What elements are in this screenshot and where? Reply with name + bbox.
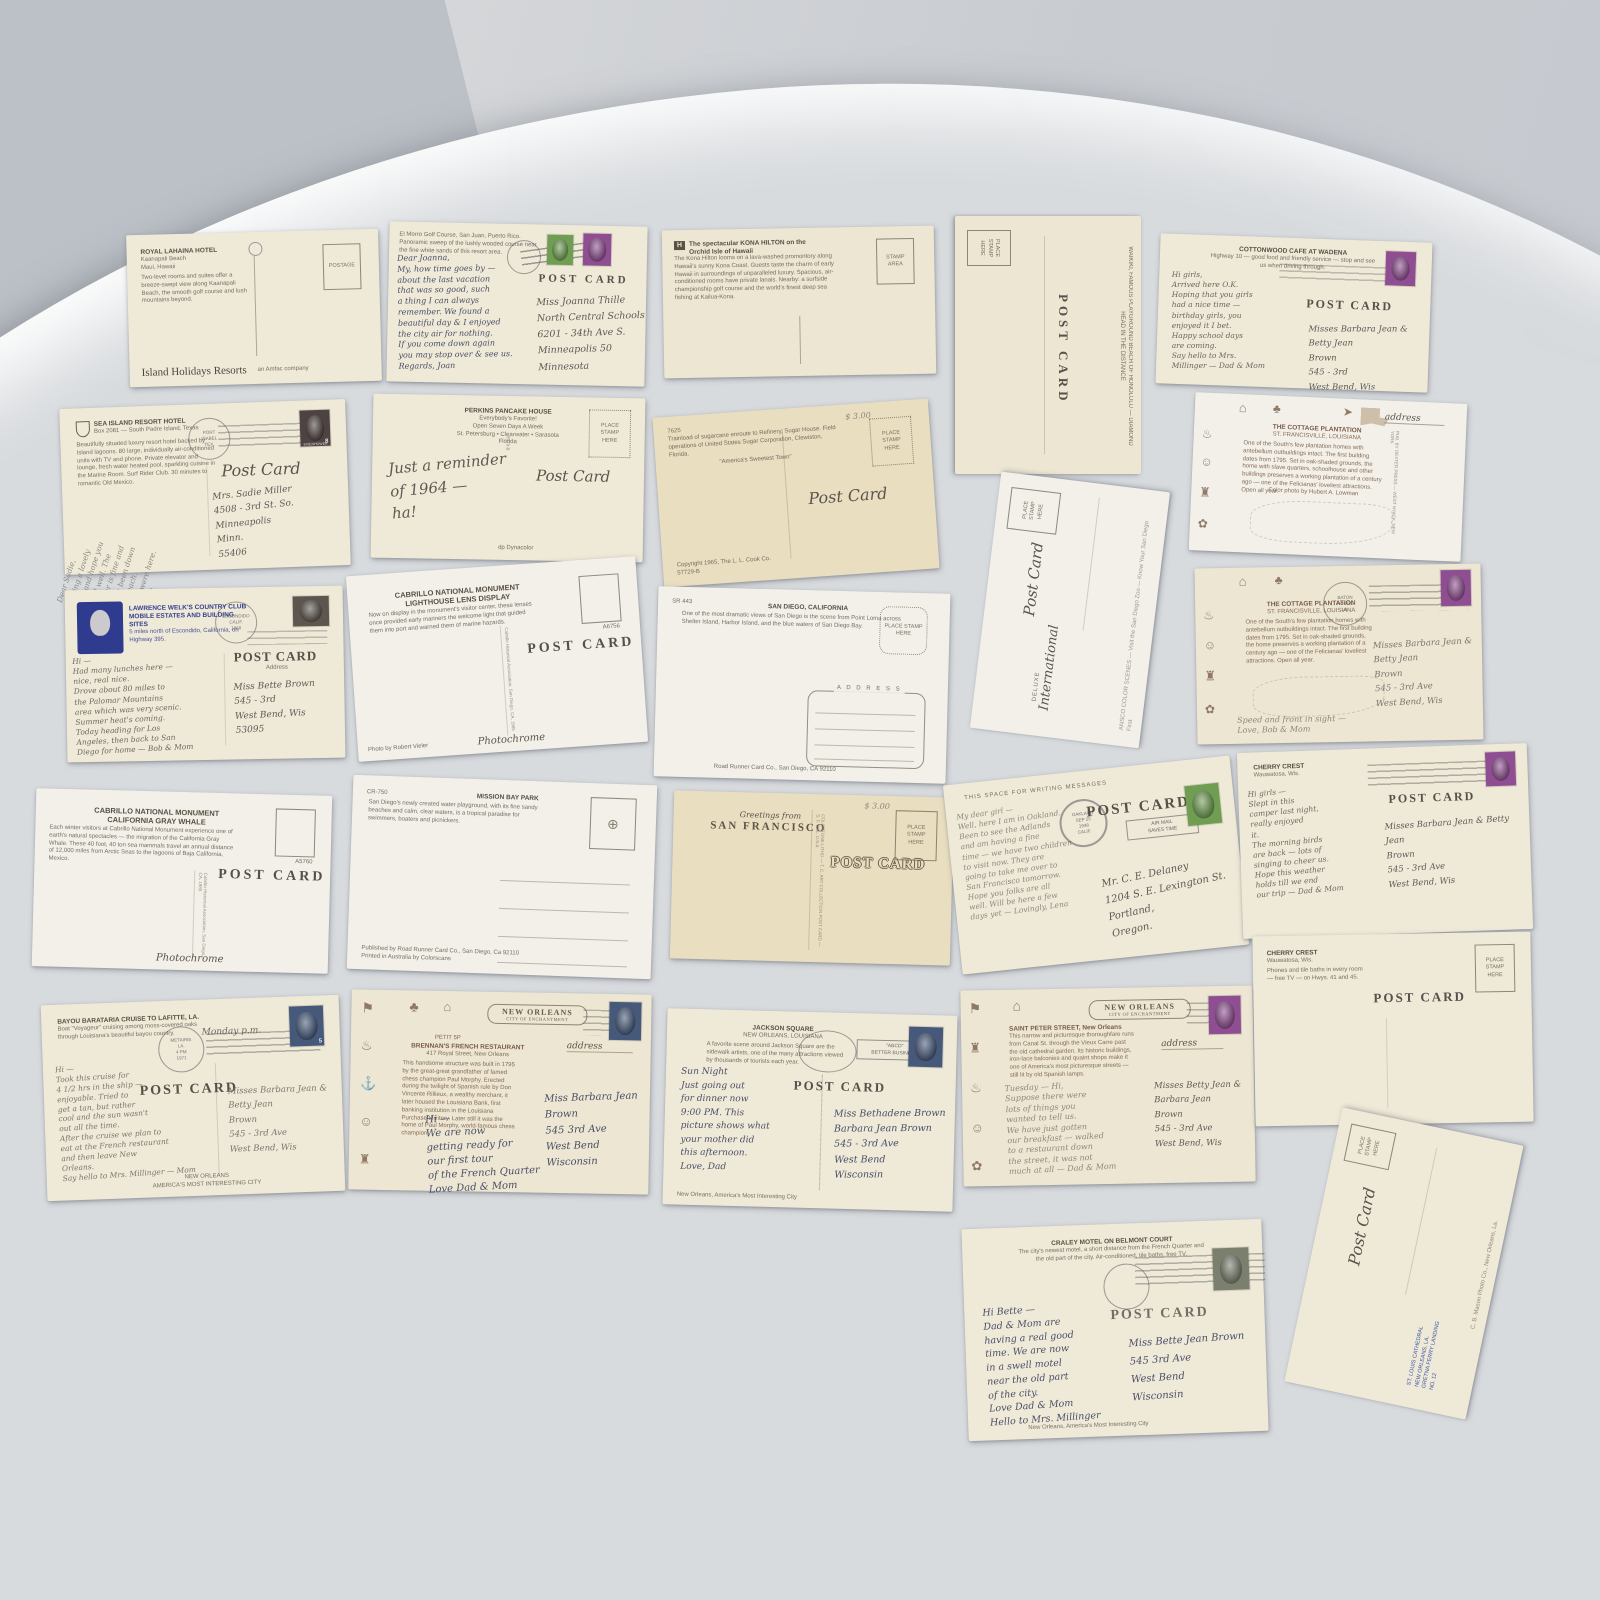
address-line — [500, 880, 630, 886]
new-orleans-cancel-icon: NEW ORLEANSCITY OF ENCHANTMENT — [1089, 999, 1191, 1021]
steamboat-sketch-icon: ♨ — [970, 1080, 982, 1096]
pencil-price-note: $ 3.00 — [864, 801, 890, 811]
printer-logo-text: Photochrome — [477, 732, 545, 748]
balcony-sketch-icon: ♜ — [359, 1152, 371, 1168]
logo-medallion-icon — [248, 242, 262, 256]
postcard-jackson-square: JACKSON SQUARE NEW ORLEANS, LOUISIANA A … — [662, 1008, 957, 1212]
handwritten-address: Miss Bethadene Brown Barbara Jean Brown … — [834, 1106, 951, 1183]
brand-subtext: an Amfac company — [258, 366, 309, 375]
postcard-label: POST CARD — [1055, 294, 1071, 405]
plantation-house-sketch-icon: ⌂ — [1239, 400, 1248, 415]
handwritten-address: Misses Betty Jean & Barbara Jean Brown 5… — [1154, 1077, 1255, 1151]
oak-tree-sketch-icon: ♣ — [1273, 402, 1281, 416]
postage-stamp-eisenhower-icon: 8EISENHOWER — [299, 410, 330, 447]
postcard-label: POST CARD — [1388, 789, 1475, 807]
card-number: SR 443 — [672, 599, 692, 607]
blue-printed-label: ST. LOUIS CATHEDRAL NEW ORLEANS, LA. GRE… — [1406, 1318, 1450, 1391]
praline-lady-sketch-icon: ☺ — [359, 1114, 373, 1129]
address-label: address — [1385, 412, 1445, 426]
postage-stamp-green-icon — [1184, 783, 1222, 826]
postcard-saint-peter-street: ⚑ ♜ ♨ ☺ ✿ ⌂ NEW ORLEANSCITY OF ENCHANTME… — [960, 985, 1255, 1186]
stamp-box: PLACE STAMP HERE — [588, 409, 631, 458]
address-line — [498, 936, 628, 942]
postcard-lawrence-welk: LAWRENCE WELK'S COUNTRY CLUB MOBILE ESTA… — [65, 586, 346, 763]
divider-line — [1044, 236, 1045, 454]
brand-logotype: Island Holidays Resorts — [142, 364, 247, 379]
card-subtitle: Wauwatosa, Wis. — [1254, 771, 1300, 780]
divider-line — [224, 654, 227, 746]
building-sketch-icon: ⌂ — [443, 999, 451, 1014]
anchor-sketch-icon: ⚓ — [360, 1076, 376, 1092]
card-caption: WAIKIKI, FAMOUS PLAYGROUND BEACH OF HONO… — [1117, 246, 1133, 446]
postcard-cottonwood-cafe: COTTONWOOD CAFE AT WADENA Highway 10 — g… — [1155, 233, 1432, 392]
postcard-cherry-crest-mailed: CHERRY CREST Wauwatosa, Wis. POST CARD H… — [1237, 743, 1533, 939]
stamp-box: PLACE STAMP HERE — [1475, 944, 1516, 993]
address-line — [499, 908, 629, 914]
address-caption: Address — [266, 665, 288, 673]
handwritten-message: Speed and front in sight — Love, Bob & M… — [1237, 712, 1437, 736]
divider-line — [215, 1063, 220, 1175]
postcard-script-label: Post Card — [536, 466, 611, 485]
handwritten-address: Misses Barbara Jean & Betty Jean Brown 5… — [1308, 323, 1428, 395]
handwritten-address: Misses Barbara Jean & Betty Jean Brown 5… — [1373, 634, 1485, 712]
card-number: CR-750 — [367, 789, 388, 798]
publisher-spine-text: COLORTONE-LITHO — T. C. ART COLLECTION P… — [812, 814, 826, 950]
postage-stamp-green-icon — [547, 235, 574, 266]
postcard-script-label: Post Card — [808, 484, 888, 508]
postage-stamp-purple-icon — [1485, 751, 1516, 786]
divider-line — [1405, 1148, 1437, 1295]
postcard-cabrillo-lens: CABRILLO NATIONAL MONUMENT LIGHTHOUSE LE… — [346, 556, 648, 762]
postcard-gray-whale: CABRILLO NATIONAL MONUMENT CALIFORNIA GR… — [32, 788, 333, 974]
postcard-label: POST CARD — [1373, 989, 1466, 1007]
lawrence-welk-portrait-icon — [77, 601, 124, 654]
publisher-spine-text: Cabrillo Historical Association, San Die… — [196, 872, 208, 958]
postcard-script-label: Post Card — [1344, 1186, 1379, 1267]
balcony-sketch-icon: ♜ — [969, 1040, 981, 1056]
stamp-box: STAMP AREA — [876, 238, 915, 285]
handwritten-message: Hi girls — Slept in this camper last nig… — [1247, 780, 1376, 901]
printer-logo-text: dp Dynacolor — [471, 545, 561, 554]
postage-stamp-purple-icon — [1208, 996, 1241, 1035]
postcard-label: POST CARD — [538, 272, 628, 286]
postcard-label: POST CARD — [527, 634, 635, 657]
card-subtitle: Kaanapali Beach Maui, Hawaii — [141, 254, 251, 272]
postcard-label: POST CARD — [234, 648, 318, 665]
handwritten-message: Dear Joanna, My, how time goes by — abou… — [397, 252, 527, 373]
plantation-house-sketch-icon: ⌂ — [1239, 574, 1247, 589]
postcard-sea-island-resort: SEA ISLAND RESORT HOTEL Box 2081 — South… — [59, 399, 351, 575]
postage-stamp-purple-icon — [1441, 570, 1472, 607]
stamp-box: PLACE STAMP HERE — [967, 230, 1011, 266]
handwritten-message: Hi girls, Arrived here O.K. Hoping that … — [1172, 270, 1300, 371]
mardi-gras-face-sketch-icon: ☺ — [1200, 454, 1213, 469]
oak-tree-sketch-icon: ♣ — [1275, 573, 1283, 587]
address-label: address — [1161, 1038, 1223, 1050]
postage-stamp-dark-icon — [293, 596, 330, 627]
divider-line — [799, 316, 801, 364]
handwritten-address: Mr. C. E. Delaney 1204 S. E. Lexington S… — [1100, 851, 1235, 943]
stamp-box: PLACE STAMP HERE — [1006, 487, 1061, 535]
hilton-logo-icon: H — [674, 241, 685, 250]
postcard-collection-photo: ROYAL LAHAINA HOTEL Kaanapali Beach Maui… — [0, 0, 1600, 1600]
address-label: address — [567, 1041, 633, 1053]
lamp-post-sketch-icon: ⚑ — [361, 1000, 374, 1017]
card-description: Each winter visitors at Cabrillo Nationa… — [48, 825, 239, 869]
postcard-clewiston-sugar: 7625 $ 3.00 Trainload of sugarcane enrou… — [652, 399, 939, 588]
lighthouse-sketch-icon: ♜ — [1204, 668, 1216, 684]
card-description: San Diego's newly created water playgrou… — [368, 799, 549, 829]
postcard-label: POST CARD — [1110, 1305, 1209, 1324]
card-description: One of the South's few plantation homes … — [1245, 617, 1376, 666]
steamboat-sketch-icon: ♨ — [361, 1038, 373, 1054]
postcard-brennans: ⚑ ♨ ⚓ ☺ ♜ ♣ ⌂ NEW ORLEANSCITY OF ENCHANT… — [348, 989, 651, 1194]
publisher-text: Published by Road Runner Card Co., San D… — [361, 946, 541, 968]
postcard-script-label: Post Card — [221, 459, 301, 481]
handwritten-message: Hi Bette — Dad & Mom are having a real g… — [982, 1298, 1120, 1431]
handwritten-address: Miss Bette Brown 545 - 3rd West Bend, Wi… — [233, 677, 317, 739]
divider-line — [192, 870, 195, 958]
postcard-cherry-crest-blank: CHERRY CREST Wauwatosa, Wis. Phones and … — [1252, 932, 1533, 1127]
stamp-box: PLACE STAMP HERE — [869, 416, 914, 467]
stamp-box: ⊕ — [589, 797, 637, 851]
postcard-oakland-portland: THIS SPACE FOR WRITING MESSAGES My dear … — [943, 755, 1249, 974]
oak-tree-sketch-icon: ♣ — [409, 998, 418, 1014]
postcard-rotated-blank: POST CARD PLACE STAMP HERE WAIKIKI, FAMO… — [955, 216, 1141, 474]
handwritten-message: Tuesday — Hi, Suppose there were lots of… — [1004, 1077, 1149, 1178]
card-number: PETIT 5P — [435, 1035, 461, 1043]
postcard-mission-bay: CR-750 MISSION BAY PARK San Diego's newl… — [347, 775, 658, 979]
building-sketch-icon: ⌂ — [1012, 998, 1021, 1014]
printer-logo-text: Photochrome — [156, 952, 224, 965]
postcard-royal-lahaina: ROYAL LAHAINA HOTEL Kaanapali Beach Maui… — [126, 229, 382, 388]
magnolia-sketch-icon: ✿ — [1198, 516, 1209, 530]
postcard-maui-message: El Morro Golf Course, San Juan, Puerto R… — [386, 221, 647, 386]
praline-lady-sketch-icon: ☺ — [971, 1120, 985, 1135]
postcard-craley-motel: CRALEY MOTEL ON BELMONT COURT The city's… — [961, 1219, 1268, 1441]
card-description: One of the most dramatic views of San Di… — [681, 611, 901, 632]
lighthouse-sketch-icon: ♜ — [1199, 484, 1211, 500]
pelican-sketch-icon: ➤ — [1343, 405, 1354, 419]
card-description: This narrow and picturesque thoroughfare… — [1009, 1032, 1136, 1081]
handwritten-message: Hi — Had many lunches here — nice, real … — [72, 649, 227, 758]
postcard-san-francisco-greetings: Greetings from SAN FRANCISCO COLORTONE-L… — [670, 790, 954, 965]
handwritten-message: Hi — Took this cruise for 4 1/2 hrs in t… — [55, 1055, 211, 1184]
postcard-kona-hilton: H The spectacular KONA HILTON on the Orc… — [662, 226, 937, 379]
postage-stamp-blue-icon — [908, 1027, 943, 1068]
lamp-post-sketch-icon: ⚑ — [968, 1000, 981, 1017]
copyright-text: Copyright 1965, The L. L. Cook Co. 57729… — [677, 554, 808, 579]
city-slogan-text: New Orleans, America's Most Interesting … — [677, 1192, 797, 1203]
steamboat-sketch-icon: ♨ — [1203, 608, 1214, 622]
card-number: A5760 — [295, 859, 313, 867]
postcard-bayou-barataria: BAYOU BARATARIA CRUISE TO LAFITTE, LA. B… — [41, 995, 346, 1201]
handwritten-address: Misses Barbara Jean & Betty Jean Brown 5… — [1384, 811, 1533, 893]
stamp-box: PLACE STAMP HERE — [1344, 1124, 1397, 1171]
publisher-spine-text: 8079-B — [504, 436, 511, 536]
postcard-perkins-pancake: PERKINS PANCAKE HOUSE Everybody's Favori… — [371, 394, 646, 563]
new-orleans-cancel-icon: NEW ORLEANSCITY OF ENCHANTMENT — [487, 1004, 587, 1026]
roadrunner-stamp-box: PLACE STAMP HERE — [879, 606, 928, 655]
postcard-script-label: Post Card — [1020, 541, 1047, 617]
postcard-san-diego: SR 443 SAN DIEGO, CALIFORNIA One of the … — [654, 586, 951, 784]
card-description: Two-level rooms and suites offer a breez… — [141, 272, 250, 306]
stamp-box: POSTAGE — [322, 243, 361, 290]
city-title: SAN FRANCISCO — [703, 819, 833, 834]
postcard-label: POST CARD — [1306, 296, 1393, 314]
pencil-price-note: $ 3.00 — [845, 411, 871, 422]
shield-logo-icon — [76, 421, 91, 437]
card-number: A6756 — [602, 623, 620, 632]
postcard-deluxe-international: DELUXE International Post Card PLACE STA… — [970, 472, 1170, 749]
divider-line — [1083, 498, 1100, 631]
handwritten-address: Misses Barbara Jean & Betty Jean Brown 5… — [228, 1081, 344, 1157]
mardi-gras-face-sketch-icon: ☺ — [1204, 638, 1217, 652]
route-map-sketch-icon — [1252, 675, 1385, 717]
brand-logotype: International — [1037, 624, 1062, 711]
handwritten-message: Just a reminder of 1964 — ha! — [387, 445, 542, 525]
divider-line — [1386, 1018, 1389, 1108]
divider-line — [254, 256, 258, 356]
postage-stamp-purple-icon — [1385, 251, 1416, 286]
postcard-cottage-plantation-mailed: ⌂ ♣ BATON ROUGE LA. ♨ ☺ ♜ ✿ THE COTTAGE … — [1194, 564, 1483, 745]
postage-stamp-purple-icon — [583, 233, 612, 266]
magnolia-sketch-icon: ✿ — [971, 1158, 982, 1174]
card-description: Phones and tile baths in every room — fr… — [1267, 967, 1363, 984]
magnolia-sketch-icon: ✿ — [1205, 702, 1215, 716]
postcard-cottage-plantation: ⌂ ♣ ➤ address ♨ ☺ ♜ ✿ THE COTTAGE PLANTA… — [1189, 392, 1468, 562]
greeting-text: Greetings from — [740, 810, 802, 821]
route-map-sketch-icon — [1249, 499, 1393, 547]
cancellation-lines-icon — [247, 630, 327, 645]
handwritten-address: Miss Joanna Thille North Central Schools… — [536, 292, 646, 376]
stamp-box — [275, 808, 316, 857]
cancellation-lines-icon — [1367, 760, 1486, 788]
card-subtitle: Wauwatosa, Wis. — [1267, 957, 1313, 966]
steamboat-sketch-icon: ♨ — [1201, 426, 1212, 440]
card-subtitle: 417 Royal Street, New Orleans — [403, 1050, 533, 1060]
handwritten-address: Miss Bette Jean Brown 545 3rd Ave West B… — [1128, 1327, 1253, 1407]
photo-credit: Photo by Robert Vieler — [368, 743, 429, 755]
card-description: The Kona Hilton looms on a lava-washed p… — [674, 253, 835, 303]
stamp-box — [578, 573, 621, 624]
stamp-box: PLACE STAMP HERE — [894, 810, 937, 861]
handwritten-message: Sun Night Just going out for dinner now … — [680, 1066, 811, 1175]
handwritten-address: Miss Barbara Jean Brown 545 3rd Ave West… — [544, 1088, 657, 1172]
publisher-spine-text: PUB. BY DEXTER PRESS — WEST NYACK, NEW Y… — [1385, 431, 1400, 541]
postage-stamp-olive-icon — [1212, 1247, 1249, 1290]
handwritten-address: Mrs. Sadie Miller 4508 - 3rd St. So. Min… — [212, 482, 299, 562]
postage-stamp-blue-icon — [609, 1002, 642, 1041]
postcard-label: POST CARD — [218, 867, 326, 886]
postage-stamp-blue-icon: 5 — [289, 1005, 324, 1046]
